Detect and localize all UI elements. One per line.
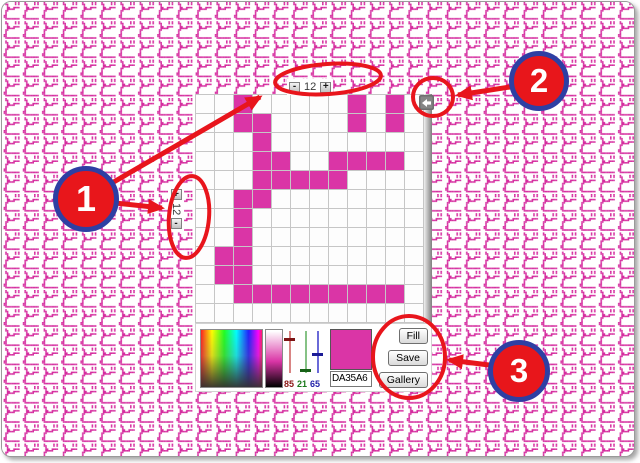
grid-cell[interactable] [386,152,404,170]
grid-cell[interactable] [291,247,309,265]
grid-cell[interactable] [196,209,214,227]
grid-cell[interactable] [310,285,328,303]
grid-cell[interactable] [253,266,271,284]
grid-cell[interactable] [405,266,423,284]
grid-cell[interactable] [253,152,271,170]
grid-cell[interactable] [196,171,214,189]
rows-decrease-button[interactable]: - [171,218,182,229]
grid-cell[interactable] [291,209,309,227]
grid-cell[interactable] [234,209,252,227]
grid-cell[interactable] [253,133,271,151]
hex-color-field[interactable]: DA35A6 [330,371,372,387]
grid-cell[interactable] [291,266,309,284]
grid-cell[interactable] [215,95,233,113]
grid-cell[interactable] [272,114,290,132]
grid-cell[interactable] [272,209,290,227]
red-slider[interactable] [284,329,296,377]
grid-cell[interactable] [272,95,290,113]
grid-cell[interactable] [234,95,252,113]
grid-cell[interactable] [196,152,214,170]
action-buttons: Fill Save Gallery [380,328,428,388]
grid-cell[interactable] [196,95,214,113]
grid-cell[interactable] [291,304,309,322]
grid-cell[interactable] [310,133,328,151]
grid-cell[interactable] [196,133,214,151]
blue-slider-track [317,331,319,373]
grid-cell[interactable] [405,133,423,151]
save-button[interactable]: Save [388,350,428,366]
columns-increase-button[interactable]: + [320,82,331,93]
grid-cell[interactable] [310,209,328,227]
grid-cell[interactable] [386,228,404,246]
grid-cell[interactable] [367,228,385,246]
red-slider-handle[interactable] [284,338,295,341]
grid-cell[interactable] [405,285,423,303]
grid-cell[interactable] [386,247,404,265]
grid-cell[interactable] [291,114,309,132]
grid-cell[interactable] [348,247,366,265]
grid-cell[interactable] [386,95,404,113]
grid-cell[interactable] [329,228,347,246]
grid-cell[interactable] [367,266,385,284]
grid-cell[interactable] [196,190,214,208]
grid-cell[interactable] [215,190,233,208]
grid-cell[interactable] [367,285,385,303]
color-picker-panel: 85 21 65 DA35A6 Fill Save Gallery [195,323,432,392]
grid-cell[interactable] [215,171,233,189]
grid-cell[interactable] [196,266,214,284]
grid-cell[interactable] [272,228,290,246]
grid-cell[interactable] [329,95,347,113]
grid-cell[interactable] [329,209,347,227]
grid-cell[interactable] [367,247,385,265]
grid-cell[interactable] [348,95,366,113]
green-slider[interactable] [300,329,312,377]
grid-cell[interactable] [329,114,347,132]
grid-cell[interactable] [405,190,423,208]
grid-cell[interactable] [253,228,271,246]
grid-cell[interactable] [348,209,366,227]
blue-value-label: 65 [310,379,320,389]
green-slider-track [305,331,307,373]
columns-count-label: 12 [304,81,316,93]
grid-cell[interactable] [348,171,366,189]
grid-cell[interactable] [253,171,271,189]
grid-cell[interactable] [405,171,423,189]
grid-cell[interactable] [348,266,366,284]
grid-cell[interactable] [196,247,214,265]
grid-cell[interactable] [234,133,252,151]
rows-stepper: + 12 - [168,187,184,231]
grid-cell[interactable] [234,190,252,208]
grid-cell[interactable] [348,114,366,132]
grid-cell[interactable] [234,285,252,303]
picture-arrow-icon [419,95,434,110]
rgb-value-labels: 85 21 65 [284,379,330,389]
grid-cell[interactable] [405,152,423,170]
grid-cell[interactable] [310,171,328,189]
grid-cell[interactable] [329,190,347,208]
grid-cell[interactable] [291,152,309,170]
grid-cell[interactable] [367,304,385,322]
columns-decrease-button[interactable]: - [289,82,300,93]
grid-cell[interactable] [291,95,309,113]
grid-cell[interactable] [215,247,233,265]
grid-cell[interactable] [348,152,366,170]
grid-cell[interactable] [386,266,404,284]
grid-cell[interactable] [234,228,252,246]
fill-button[interactable]: Fill [399,328,428,344]
grid-cell[interactable] [348,285,366,303]
grid-cell[interactable] [405,304,423,322]
color-swatch [330,329,372,370]
grid-cell[interactable] [405,247,423,265]
rows-increase-button[interactable]: + [171,189,182,200]
grid-cell[interactable] [253,95,271,113]
grid-cell[interactable] [310,228,328,246]
green-slider-handle[interactable] [300,369,311,372]
grid-cell[interactable] [272,247,290,265]
grid-cell[interactable] [386,190,404,208]
grid-cell[interactable] [310,95,328,113]
grid-cell[interactable] [367,95,385,113]
grid-cell[interactable] [215,266,233,284]
grid-cell[interactable] [272,171,290,189]
grid-cell[interactable] [310,247,328,265]
grid-cell[interactable] [253,247,271,265]
grid-cell[interactable] [215,304,233,322]
grid-cell[interactable] [215,133,233,151]
blue-slider[interactable] [312,329,324,377]
grid-cell[interactable] [348,304,366,322]
grid-cell[interactable] [386,133,404,151]
grid-cell[interactable] [215,228,233,246]
columns-stepper: - 12 + [287,79,333,95]
grid-cell[interactable] [234,152,252,170]
value-gradient-bar[interactable] [265,329,283,388]
grid-cell[interactable] [291,133,309,151]
grid-cell[interactable] [272,190,290,208]
grid-cell[interactable] [196,285,214,303]
grid-cell[interactable] [367,171,385,189]
grid-cell[interactable] [196,304,214,322]
grid-cell[interactable] [291,285,309,303]
grid-cell[interactable] [234,266,252,284]
image-tool-button[interactable] [419,95,434,110]
grid-cell[interactable] [386,285,404,303]
blue-slider-handle[interactable] [312,353,323,356]
pixel-grid[interactable] [195,94,424,323]
grid-cell[interactable] [234,247,252,265]
hue-saturation-picker[interactable] [200,329,263,388]
grid-cell[interactable] [386,114,404,132]
app-page: { "background": { "tile_color": "#d52d9f… [1,1,635,457]
grid-cell[interactable] [215,152,233,170]
grid-cell[interactable] [253,114,271,132]
grid-cell[interactable] [215,285,233,303]
grid-cell[interactable] [367,190,385,208]
grid-cell[interactable] [405,228,423,246]
grid-cell[interactable] [405,114,423,132]
grid-cell[interactable] [196,114,214,132]
grid-cell[interactable] [329,133,347,151]
grid-cell[interactable] [386,209,404,227]
grid-cell[interactable] [329,247,347,265]
screenshot-viewport: { "background": { "tile_color": "#d52d9f… [0,0,640,463]
red-value-label: 85 [284,379,294,389]
grid-cell[interactable] [348,228,366,246]
grid-right-strip [424,94,432,323]
grid-cell[interactable] [272,266,290,284]
grid-cell[interactable] [329,266,347,284]
grid-cell[interactable] [310,190,328,208]
grid-cell[interactable] [367,114,385,132]
rows-count-label: 12 [170,203,182,215]
grid-cell[interactable] [329,152,347,170]
grid-cell[interactable] [234,114,252,132]
grid-cell[interactable] [272,133,290,151]
grid-cell[interactable] [215,209,233,227]
grid-cell[interactable] [253,190,271,208]
grid-cell[interactable] [234,304,252,322]
grid-cell[interactable] [272,152,290,170]
grid-cell[interactable] [272,285,290,303]
grid-cell[interactable] [310,266,328,284]
grid-cell[interactable] [291,190,309,208]
grid-cell[interactable] [310,152,328,170]
grid-cell[interactable] [405,209,423,227]
grid-cell[interactable] [253,209,271,227]
callout-2: 2 [509,51,569,111]
grid-cell[interactable] [386,304,404,322]
grid-cell[interactable] [291,228,309,246]
grid-cell[interactable] [291,171,309,189]
grid-cell[interactable] [348,190,366,208]
callout-3: 3 [488,340,550,402]
callout-1: 1 [53,166,119,232]
grid-cell[interactable] [367,209,385,227]
grid-cell[interactable] [253,304,271,322]
grid-cell[interactable] [367,133,385,151]
grid-cell[interactable] [310,114,328,132]
grid-cell[interactable] [234,171,252,189]
grid-cell[interactable] [196,228,214,246]
grid-cell[interactable] [329,171,347,189]
grid-cell[interactable] [272,304,290,322]
grid-cell[interactable] [310,304,328,322]
grid-cell[interactable] [348,133,366,151]
grid-cell[interactable] [367,152,385,170]
grid-cell[interactable] [329,304,347,322]
green-value-label: 21 [297,379,307,389]
gallery-button[interactable]: Gallery [379,372,428,388]
grid-cell[interactable] [329,285,347,303]
grid-cell[interactable] [253,285,271,303]
rgb-sliders: 85 21 65 [284,329,330,389]
grid-cell[interactable] [386,171,404,189]
grid-cell[interactable] [215,114,233,132]
